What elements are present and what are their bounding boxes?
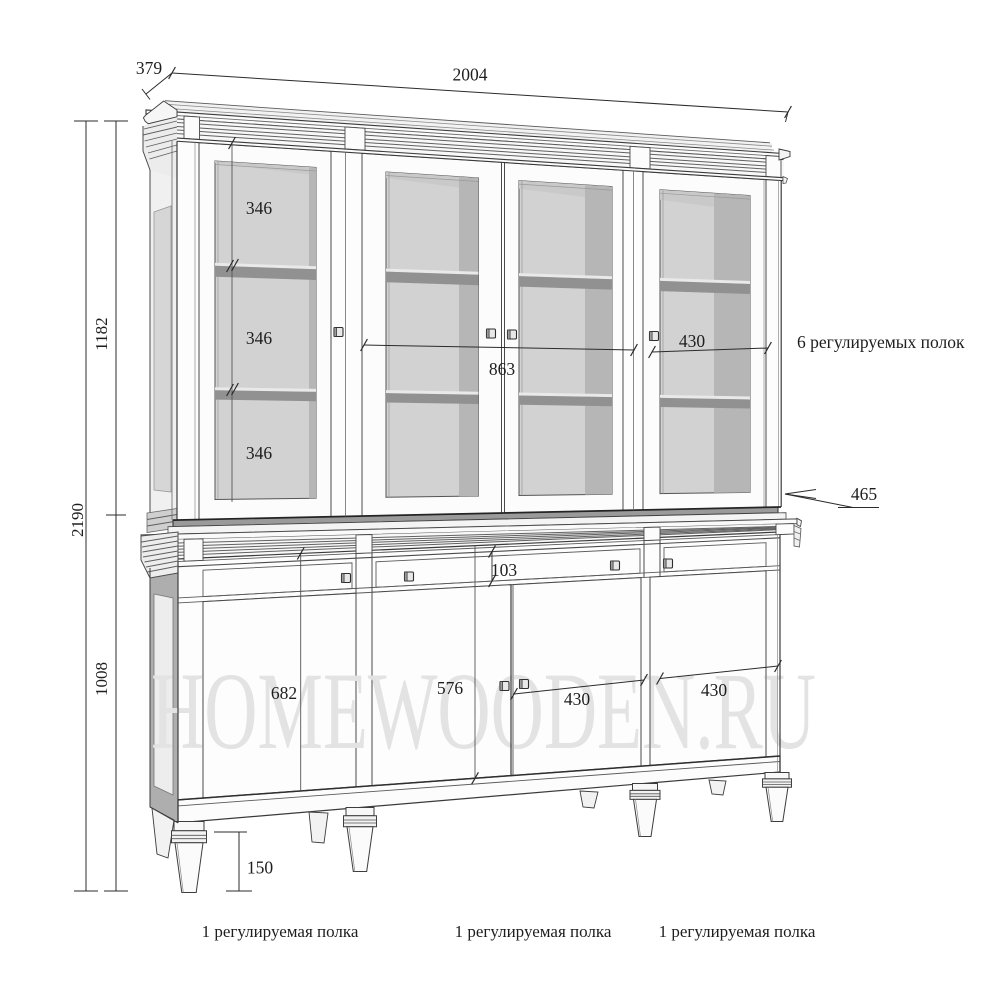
svg-text:682: 682	[271, 683, 297, 703]
svg-text:346: 346	[246, 198, 273, 218]
svg-text:430: 430	[679, 331, 706, 351]
svg-text:1 регулируемая полка: 1 регулируемая полка	[659, 922, 816, 941]
svg-text:430: 430	[564, 689, 591, 709]
svg-text:HOMEWOODEN.RU: HOMEWOODEN.RU	[151, 650, 816, 772]
svg-text:150: 150	[247, 858, 274, 878]
svg-text:103: 103	[491, 560, 518, 580]
svg-text:465: 465	[851, 484, 878, 504]
svg-text:430: 430	[701, 680, 728, 700]
svg-text:379: 379	[136, 58, 163, 78]
svg-text:863: 863	[489, 359, 516, 379]
svg-text:346: 346	[246, 328, 273, 348]
svg-text:1008: 1008	[92, 662, 111, 696]
svg-text:2190: 2190	[68, 503, 87, 537]
svg-text:576: 576	[437, 678, 464, 698]
svg-text:6 регулируемых полок: 6 регулируемых полок	[797, 332, 965, 352]
svg-text:1182: 1182	[92, 317, 111, 350]
svg-text:1 регулируемая полка: 1 регулируемая полка	[455, 922, 612, 941]
svg-text:2004: 2004	[453, 65, 488, 85]
svg-text:1 регулируемая полка: 1 регулируемая полка	[202, 922, 359, 941]
svg-text:346: 346	[246, 443, 273, 463]
